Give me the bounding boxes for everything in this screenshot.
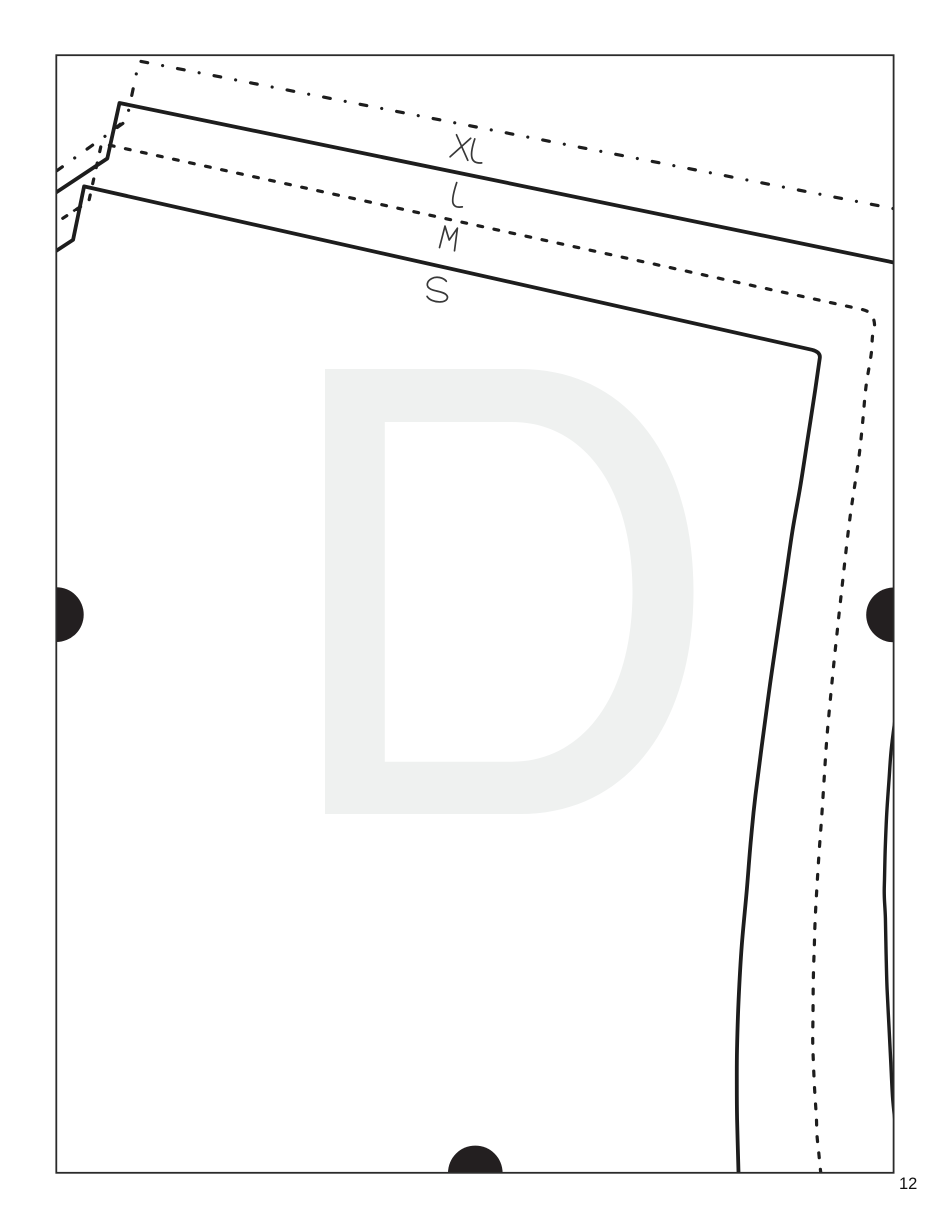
svg-text:12: 12 bbox=[899, 1175, 917, 1193]
